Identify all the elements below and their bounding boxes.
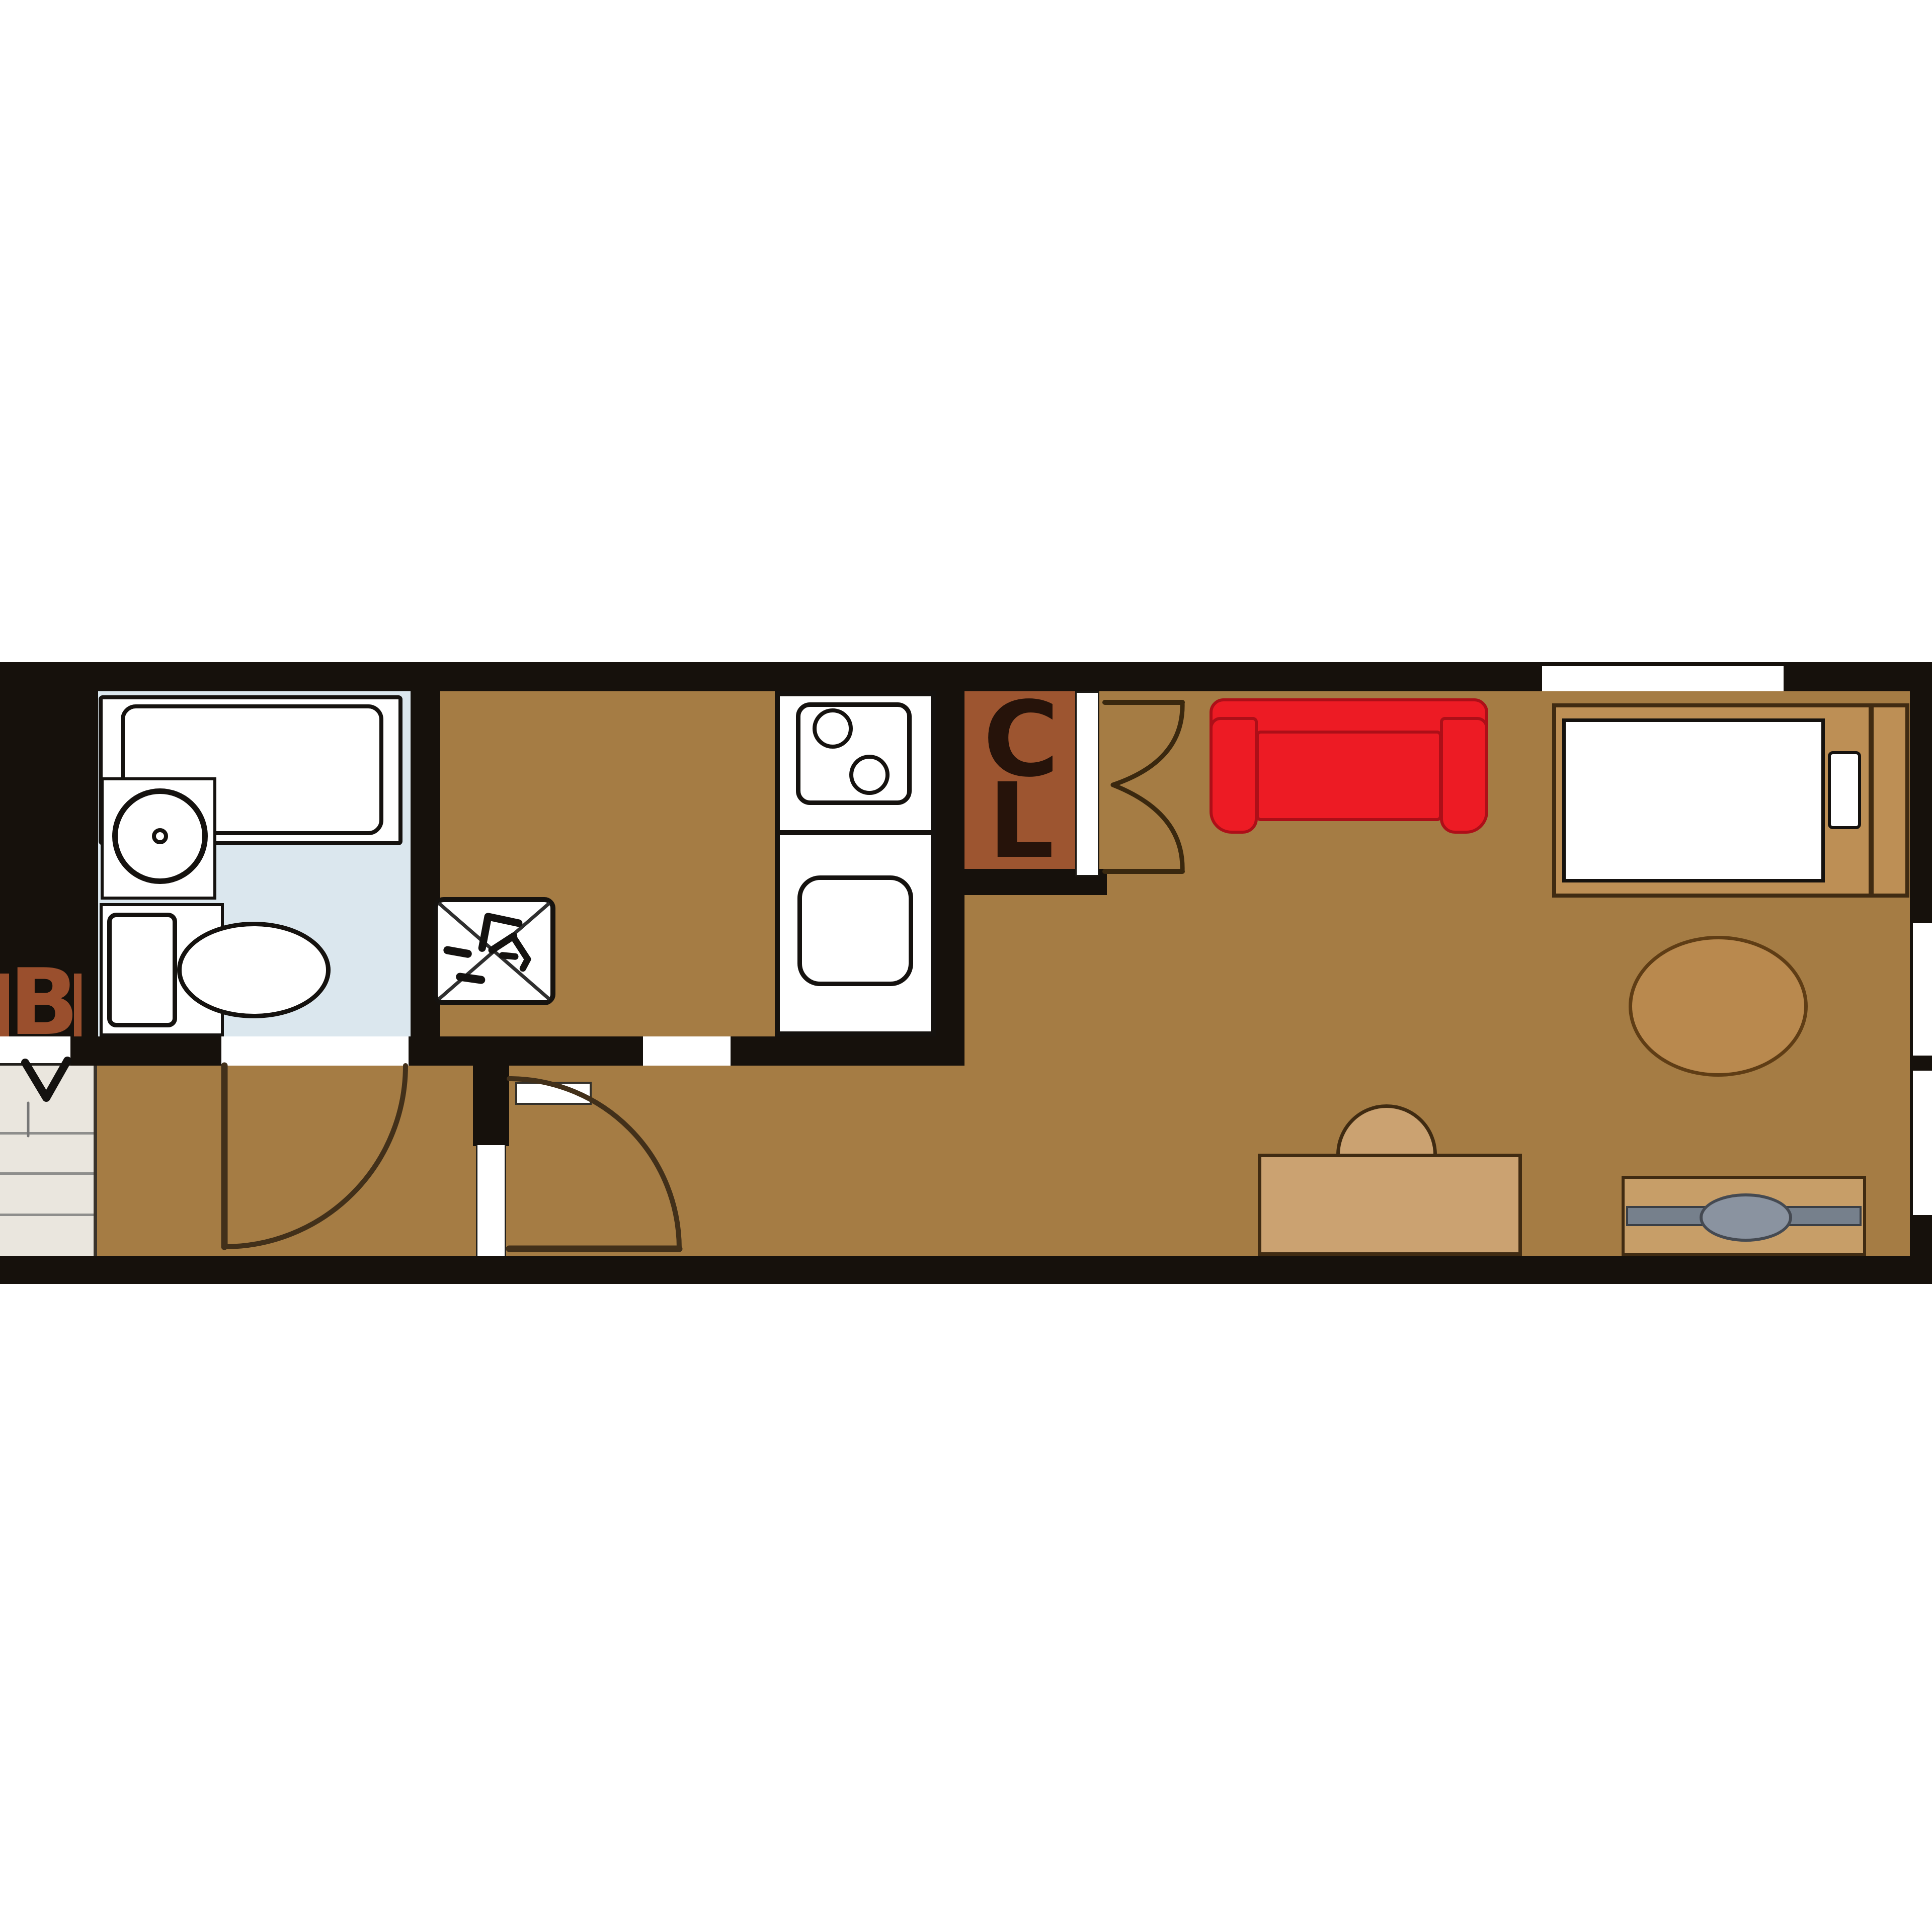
stove-burner bbox=[849, 755, 890, 795]
toilet-tank bbox=[107, 913, 177, 1027]
floor-plan: B C L bbox=[0, 0, 1932, 1932]
stairs-landing bbox=[0, 1066, 95, 1256]
refrigerator-box bbox=[433, 897, 555, 1005]
bath-label: B bbox=[9, 969, 74, 1036]
closet-door-strip bbox=[1075, 691, 1099, 876]
closet-label-l: L bbox=[964, 781, 1078, 862]
counter-divider bbox=[780, 830, 931, 835]
sink-drain-dot bbox=[152, 828, 168, 844]
stair-line bbox=[0, 1214, 94, 1216]
toilet-bowl bbox=[177, 922, 331, 1018]
corridor-opening bbox=[643, 1036, 731, 1066]
bed-mattress bbox=[1562, 718, 1825, 882]
desk bbox=[1258, 1154, 1522, 1256]
tv-screen bbox=[1700, 1193, 1792, 1242]
entry-door-opening bbox=[476, 1145, 506, 1256]
right-window-lower bbox=[1913, 1071, 1932, 1215]
couch-arm-right bbox=[1440, 717, 1488, 834]
label-fragment-bar bbox=[0, 974, 9, 1036]
bathroom-right-wall bbox=[411, 662, 440, 1066]
right-window-upper bbox=[1913, 923, 1932, 1056]
hall-wall bbox=[0, 1036, 964, 1066]
bed-headboard-line bbox=[1869, 703, 1874, 898]
sliding-door-leaf bbox=[515, 1082, 592, 1105]
kitchen-sink bbox=[797, 875, 913, 986]
couch-seat bbox=[1256, 731, 1442, 821]
stairs-edge-line bbox=[94, 1066, 97, 1256]
stair-line bbox=[0, 1172, 94, 1175]
top-window bbox=[1542, 666, 1784, 691]
entry-partition-wall bbox=[473, 1066, 509, 1146]
left-door-opening bbox=[0, 1036, 70, 1066]
bottom-wall bbox=[0, 1256, 1932, 1284]
stove bbox=[796, 702, 912, 805]
couch-arm-left bbox=[1210, 717, 1258, 834]
stove-burner bbox=[813, 708, 853, 749]
bed-pillow bbox=[1828, 751, 1861, 829]
stair-line bbox=[0, 1132, 94, 1135]
oval-table bbox=[1629, 936, 1808, 1077]
bathroom-door-opening bbox=[221, 1036, 409, 1066]
label-fragment-bar bbox=[74, 974, 82, 1036]
kitchen-closet-wall bbox=[935, 662, 964, 1066]
